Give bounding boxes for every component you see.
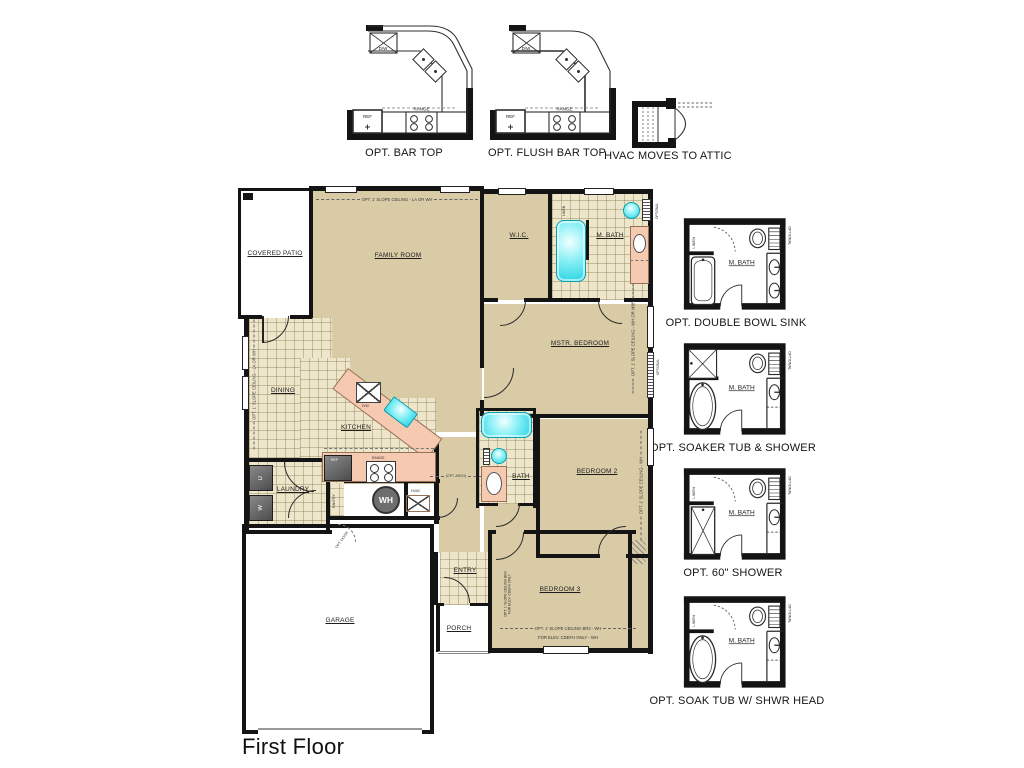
mbath-sink-icon [633, 234, 646, 253]
bedroom2-label: BEDROOM 2 [577, 468, 618, 475]
laundry-label: LAUNDRY [277, 486, 309, 493]
wall [624, 298, 652, 302]
wall [536, 418, 540, 558]
entry-label: ENTRY [454, 567, 477, 574]
bath-sink-icon [486, 472, 502, 495]
door-arc [720, 663, 741, 684]
wall [524, 298, 600, 302]
optional-label: OPTIONAL [655, 196, 659, 226]
bath-tub-icon [481, 412, 532, 438]
wall [533, 408, 536, 508]
counter-overhang [324, 448, 434, 449]
sink-icon [767, 385, 782, 407]
wall [434, 552, 438, 605]
page-title: First Floor [242, 734, 344, 760]
wall [244, 458, 332, 462]
mbath-label: M. BATH [729, 384, 755, 391]
opt-double-bowl-diagram: M. BATH LINEN OPTIONAL [683, 215, 793, 312]
window [440, 186, 470, 193]
toilet-icon [750, 228, 780, 249]
wall [476, 503, 498, 506]
note-text: OPT. 1' SLOPE CEILING - WH [639, 457, 644, 514]
floorplan-stage: D/W REF RANGE OPT. BAR TOP D/W REF R [0, 0, 1024, 768]
note-text: OPT. 1' SLOPE CEILING - LA OR WH [252, 349, 257, 420]
opt-soak-tub-shwr-head-label: OPT. SOAK TUB W/ SHWR HEAD [650, 695, 825, 707]
wall [480, 189, 484, 304]
window [325, 186, 357, 193]
wall [436, 605, 440, 652]
porch-step [438, 651, 490, 654]
bedroom3-elev-note: FOR ELEV. CDEFH ONLY - WH [500, 635, 636, 640]
wall [518, 503, 536, 506]
door-arc [720, 535, 741, 556]
optional-label: OPTIONAL [787, 351, 791, 370]
sink-icon [413, 49, 446, 82]
dryer-label: D [258, 476, 264, 480]
toilet-icon [750, 606, 780, 627]
window [647, 306, 654, 348]
opt-bar-top-diagram: D/W REF RANGE [346, 24, 474, 146]
tub-icon [691, 257, 714, 305]
washer-icon: W [249, 495, 273, 521]
burner-icon [384, 464, 393, 473]
wall [326, 516, 440, 520]
window [242, 336, 249, 370]
family-ceiling-note: OPT. 1' SLOPE CEILING - LA OR WH [316, 197, 478, 202]
ref-label: REF [331, 458, 338, 462]
mstr-ceiling-note: OPT. 1' SLOPE CEILING - WH OR MBR [631, 284, 636, 394]
opt-60-shower-label: OPT. 60" SHOWER [683, 567, 782, 579]
bedroom3-label: BEDROOM 3 [540, 586, 581, 593]
dw-label: D/W [362, 404, 369, 408]
note-text: OPT. 1' SLOPE CEILING BR3 - WH [535, 626, 602, 631]
shower-icon [689, 349, 717, 378]
door-arc [714, 605, 735, 629]
linen-label: LINEN [562, 200, 566, 222]
room-garage [242, 524, 434, 734]
door-arc [714, 477, 735, 501]
dishwasher-icon [356, 382, 381, 403]
hvac-icon [406, 495, 430, 512]
wh-label: WH [379, 495, 393, 505]
wall [476, 408, 479, 508]
optional-label: OPTIONAL [787, 226, 791, 245]
wh-icon: WH [372, 486, 400, 514]
range-label: RANGE [556, 107, 572, 112]
dw-label: D/W [379, 46, 389, 51]
mbath-label: M. BATH [596, 232, 623, 239]
window [242, 376, 249, 410]
wall [632, 98, 676, 148]
dining-ceiling-note: OPT. 1' SLOPE CEILING - LA OR WH [252, 320, 257, 450]
bedroom2-ceiling-note: OPT. 1' SLOPE CEILING - WH [639, 431, 644, 541]
wall [488, 530, 492, 652]
wall [243, 193, 253, 200]
dryer-icon: D [249, 465, 273, 491]
dw-label: D/W [522, 46, 532, 51]
burner-icon [384, 473, 393, 482]
optional-label: OPTIONAL [787, 476, 791, 495]
toilet-icon [750, 353, 780, 374]
bath-label: BATH [512, 473, 530, 480]
optional-label: OPTIONAL [656, 352, 660, 382]
kitchen-label: KITCHEN [341, 424, 371, 431]
wall [476, 408, 536, 411]
wic-label: W.I.C. [510, 232, 529, 239]
opt-soak-tub-shwr-head-diagram: M. BATH LINEN OPTIONAL [683, 593, 793, 690]
mbath-label: M. BATH [729, 637, 755, 644]
wall [470, 603, 492, 606]
optional-label: OPTIONAL [787, 604, 791, 623]
door-leaf [262, 316, 264, 343]
covered-patio-label: COVERED PATIO [247, 250, 302, 257]
room-wic [484, 194, 548, 300]
optional-door [647, 352, 654, 398]
window [498, 188, 526, 195]
note-text: OPT. 1' SLOPE CEILING - WH OR MBR [631, 301, 636, 376]
shower-icon [691, 507, 714, 555]
window [584, 188, 614, 195]
family-room-label: FAMILY ROOM [375, 252, 422, 259]
sink-icon [769, 260, 780, 298]
wall [238, 315, 262, 319]
window [543, 646, 589, 654]
range-label: RANGE [413, 107, 429, 112]
wall [538, 554, 600, 558]
door-arc [714, 227, 735, 251]
window [647, 428, 654, 466]
ref-label: REF [506, 114, 515, 119]
fridge-icon [324, 455, 352, 481]
opt-double-bowl-label: OPT. DOUBLE BOWL SINK [666, 317, 807, 329]
opt-soaker-tub-shower-label: OPT. SOAKER TUB & SHOWER [650, 442, 816, 454]
range-icon [406, 112, 437, 133]
linen-label: LINEN [691, 615, 696, 627]
range-icon [549, 112, 580, 133]
wall [482, 298, 498, 302]
wall [586, 220, 589, 260]
burner-icon [370, 473, 379, 482]
mbath-tub-icon [556, 220, 586, 282]
bedroom3-ceiling-note: OPT. 1' SLOPE CEILING BR3 - WH [500, 626, 636, 631]
mbath-label: M. BATH [729, 259, 755, 266]
opt-60-shower-diagram: M. BATH LINEN OPTIONAL [683, 465, 793, 562]
toilet-icon [750, 478, 780, 499]
note-text: (OPT. ARCH) [446, 474, 466, 478]
burner-icon [370, 464, 379, 473]
range-label: RANGE [372, 456, 384, 460]
vanity-dash [630, 260, 649, 261]
wall [309, 189, 313, 318]
opt-soaker-tub-shower-diagram: M. BATH OPTIONAL [683, 340, 793, 437]
wall [436, 603, 444, 606]
wall [548, 192, 552, 302]
toilet-tank [483, 448, 490, 465]
linen-label: LINEN [691, 237, 696, 249]
bath-toilet-icon [491, 448, 507, 464]
hvac-attic-label: HVAC MOVES TO ATTIC [604, 150, 732, 162]
linen-label: LINEN [691, 487, 696, 499]
hall [439, 437, 480, 553]
porch-label: PORCH [447, 625, 471, 632]
range-icon [366, 461, 396, 483]
sink-icon [556, 49, 589, 82]
pantry-label: PANTRY [332, 487, 336, 515]
note-text: OPT. 1' SLOPE CEILING - LA OR WH [362, 197, 433, 202]
wall [242, 530, 332, 534]
opt-bar-top-label: OPT. BAR TOP [365, 147, 443, 159]
tub-icon [690, 636, 716, 683]
door-arc [720, 410, 741, 431]
ref-label: REF [363, 114, 372, 119]
opt-flush-bar-top-diagram: D/W REF RANGE [489, 24, 617, 146]
wall [480, 302, 484, 368]
garage-label: GARAGE [325, 617, 354, 624]
door-arc [675, 108, 686, 140]
opt-arch-note: (OPT. ARCH) [430, 474, 482, 478]
closet-shelf [632, 540, 646, 564]
sink-icon [767, 510, 782, 532]
washer-label: W [258, 505, 264, 511]
mbath-toilet-icon [623, 202, 640, 219]
toilet-tank [642, 199, 651, 221]
tub-icon [690, 383, 716, 430]
dining-label: DINING [271, 387, 295, 394]
hvac-label: HVAC [411, 489, 420, 493]
door-arc [720, 285, 741, 306]
sink-icon [767, 638, 782, 660]
hvac-attic-diagram [626, 98, 722, 150]
mstr-bedroom-label: MSTR. BEDROOM [551, 340, 609, 347]
mbath-label: M. BATH [729, 509, 755, 516]
opt-flush-bar-top-label: OPT. FLUSH BAR TOP [488, 147, 606, 159]
